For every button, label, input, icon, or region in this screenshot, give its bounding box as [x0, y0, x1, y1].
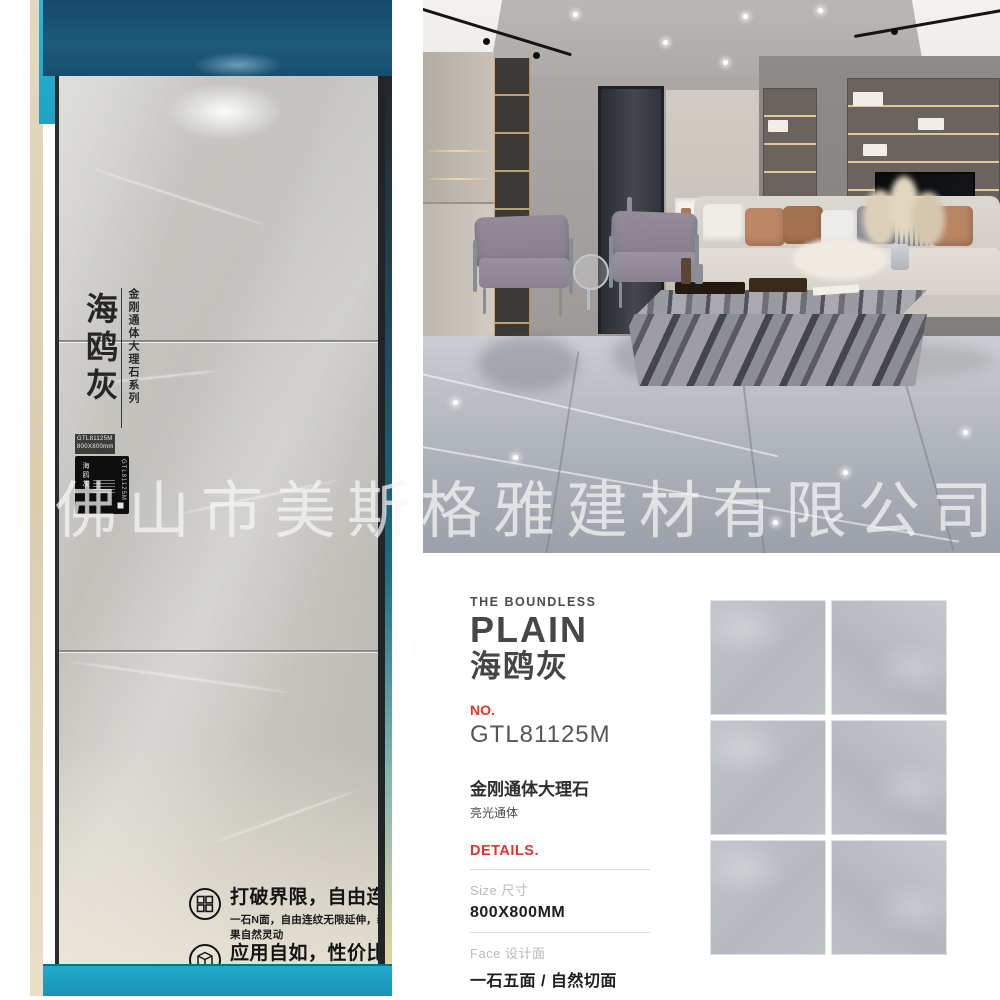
display-code: GTL81125M [77, 435, 113, 443]
decanter-bottle [681, 258, 691, 284]
floor-sparkle [963, 430, 968, 435]
feature-subtitle: 一石N面，自由连纹无限延伸，装饰效果自然灵动 [230, 912, 385, 942]
armchair-leg [619, 282, 622, 308]
ceiling-spotlight [743, 14, 748, 19]
vase [891, 244, 909, 270]
shelf-light [429, 178, 489, 180]
books [853, 92, 883, 106]
cube-icon [189, 944, 221, 964]
tile-swatch [710, 720, 826, 835]
display-code-band: GTL81125M 800X800mm [75, 434, 115, 454]
display-footer-band [43, 964, 392, 996]
tile-seam [59, 650, 378, 652]
tile-swatch [831, 600, 947, 715]
product-name: 海鸥灰 [470, 649, 665, 685]
armchair-frame [569, 238, 573, 294]
tile-swatch [710, 840, 826, 955]
armchair-leg [559, 288, 562, 316]
light-glow [193, 52, 283, 78]
collection-name: THE BOUNDLESS [470, 595, 665, 609]
no-label: NO. [470, 702, 665, 718]
spec-size-value: 800X800MM [470, 904, 665, 922]
armchair-frame [473, 240, 477, 292]
coffee-table-front [627, 314, 927, 386]
tile-swatch [831, 840, 947, 955]
books [918, 118, 944, 130]
display-size: 800X800mm [77, 443, 113, 451]
divider [470, 932, 650, 933]
glass-display-cabinet [494, 58, 530, 358]
sofa-pillow-brown [783, 206, 823, 244]
books [768, 120, 788, 132]
tile-pattern-icon [189, 888, 221, 920]
product-category-sub: 亮光通体 [470, 804, 665, 821]
side-table-leg [587, 290, 590, 310]
floor-sparkle [453, 400, 458, 405]
display-side-trim [30, 0, 43, 996]
armchair-left-seat [479, 258, 569, 288]
sofa-pillow-caramel [745, 208, 785, 246]
series-name: PLAIN [470, 611, 665, 649]
product-poster: 海鸥灰 金刚通体大理石系列 GTL81125M 800X800mm GTL811… [0, 0, 1000, 1000]
entry-door [598, 86, 664, 334]
tile-swatch-grid [710, 600, 947, 955]
side-table [573, 254, 609, 290]
tile-swatch [831, 720, 947, 835]
books [863, 144, 887, 156]
floor-reflection [478, 336, 578, 391]
divider [470, 869, 650, 870]
tile-swatch [710, 600, 826, 715]
ceiling-spotlight [818, 8, 823, 13]
track-light-bulb [483, 38, 490, 45]
wooden-tray [749, 278, 807, 292]
product-category: 金刚通体大理石 [470, 775, 665, 800]
feature-callout-1: 打破界限，自由连纹 一石N面，自由连纹无限延伸，装饰效果自然灵动 [189, 888, 385, 942]
spec-size-label: Size 尺寸 [470, 880, 665, 899]
ceiling-spotlight [573, 12, 578, 17]
shelf-light [429, 150, 489, 152]
track-light-bulb [891, 28, 898, 35]
spec-face-label: Face 设计面 [470, 943, 665, 962]
ceiling-spotlight [663, 40, 668, 45]
feature-title: 应用自如，性价比高 [230, 944, 385, 964]
spec-face-value: 一石五面 / 自然切面 [470, 967, 665, 991]
kitchen-cabinet-upper [423, 52, 494, 204]
display-product-name-vertical: 海鸥灰 [77, 292, 123, 432]
glass [695, 264, 703, 284]
armchair-leg [483, 288, 486, 314]
feature-callout-2: 应用自如，性价比高 可上墙下地，铺贴简单，人工费用相对低 [189, 944, 385, 964]
armchair-frame [609, 236, 613, 288]
display-header-band [43, 0, 392, 76]
display-series-vertical: 金刚通体大理石系列 [121, 288, 141, 428]
pampas-grass [911, 192, 945, 246]
product-code: GTL81125M [470, 721, 665, 749]
feature-title: 打破界限，自由连纹 [230, 888, 385, 909]
sofa-pillow-white [703, 204, 747, 244]
ceiling-spotlight [723, 60, 728, 65]
details-label: DETAILS. [470, 843, 665, 859]
company-watermark: 佛山市美斯格雅建材有限公司 [55, 462, 955, 548]
product-details-panel: THE BOUNDLESS PLAIN 海鸥灰 NO. GTL81125M 金刚… [470, 595, 665, 1000]
track-light-bulb [533, 52, 540, 59]
